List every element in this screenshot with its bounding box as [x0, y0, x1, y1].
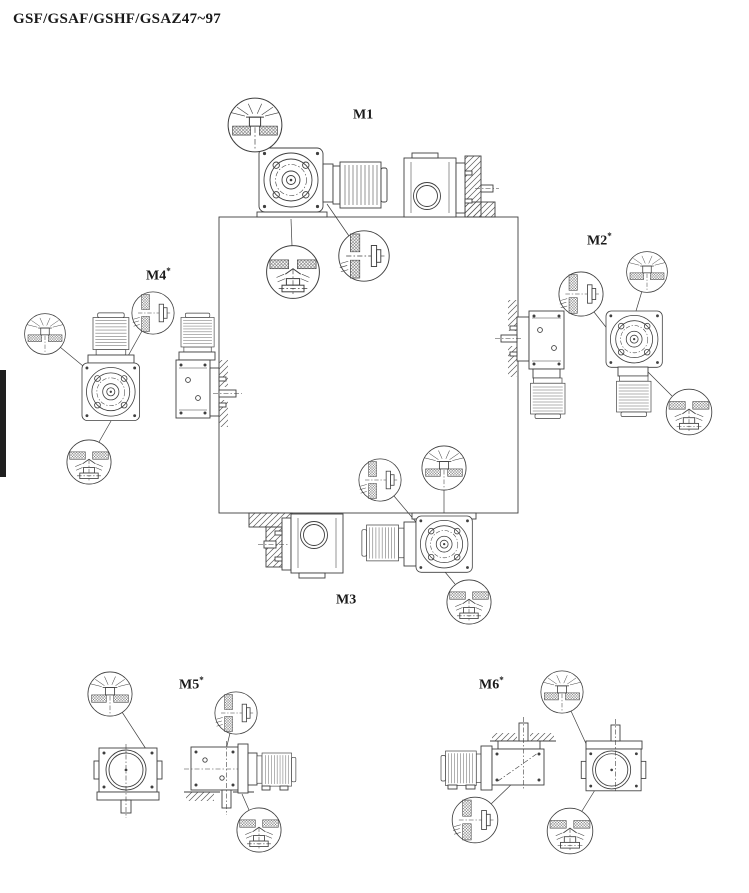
m4-gearmotor-front-view	[82, 313, 140, 421]
mounting-label-m5: M5*	[179, 675, 204, 694]
leader-line	[60, 347, 83, 366]
m5-arrangement	[88, 672, 296, 852]
m2-gearmotor-side-view	[495, 300, 565, 419]
leader-line	[445, 572, 455, 584]
m4-gearmotor-side-view	[176, 313, 242, 427]
catalog-page: GSF/GSAF/GSHF/GSAZ47~97	[0, 0, 749, 893]
oil-drain-plug-icon	[447, 580, 491, 624]
mounting-label-m3: M3	[336, 590, 356, 609]
oil-level-plug-icon	[452, 797, 498, 843]
m3-gearmotor-side-view	[249, 513, 343, 578]
mounting-label-m4: M4*	[146, 266, 171, 285]
m3-arrangement	[249, 446, 491, 624]
m6-arrangement	[441, 671, 646, 854]
leader-line	[582, 790, 595, 811]
oil-drain-plug-icon	[547, 808, 593, 854]
oil-drain-plug-icon	[67, 440, 111, 484]
leader-line	[99, 421, 111, 442]
oil-level-plug-icon	[559, 272, 603, 316]
breather-vent-plug-icon	[422, 446, 466, 490]
m6-gearmotor-side-view	[441, 717, 556, 790]
mounting-label-m6: M6*	[479, 675, 504, 694]
leader-line	[242, 794, 249, 810]
m5-gearbox-top-view	[94, 744, 162, 818]
oil-drain-plug-icon	[666, 389, 712, 435]
m1-arrangement	[228, 98, 499, 298]
leader-line	[327, 204, 349, 236]
leader-line	[122, 712, 146, 749]
leader-line	[571, 711, 588, 748]
breather-vent-plug-icon	[541, 671, 583, 713]
leader-line	[636, 291, 642, 311]
m4-arrangement	[25, 292, 242, 484]
breather-vent-plug-icon	[228, 98, 282, 152]
oil-level-plug-icon	[132, 292, 174, 334]
oil-level-plug-icon	[359, 459, 401, 501]
m3-gearmotor-front-view	[362, 513, 476, 572]
oil-level-plug-icon	[339, 231, 389, 281]
breather-vent-plug-icon	[25, 314, 66, 355]
oil-drain-plug-icon	[237, 808, 281, 852]
breather-vent-plug-icon	[627, 252, 668, 293]
mounting-label-m1: M1	[353, 105, 373, 124]
page-edge-tab	[0, 370, 6, 477]
m2-arrangement	[495, 252, 712, 435]
leader-line	[291, 219, 292, 246]
m1-gearmotor-front-view	[257, 148, 387, 217]
mounting-positions-diagram	[0, 0, 749, 893]
m2-gearmotor-front-view	[606, 311, 662, 417]
leader-line	[648, 372, 672, 396]
breather-vent-plug-icon	[88, 672, 132, 716]
mounting-label-m2: M2*	[587, 231, 612, 250]
oil-drain-plug-icon	[267, 246, 320, 299]
m1-gearmotor-side-view	[404, 153, 499, 217]
m6-gearbox-top-view	[581, 719, 646, 792]
m5-gearmotor-side-view	[184, 741, 296, 815]
oil-level-plug-icon	[215, 692, 257, 734]
